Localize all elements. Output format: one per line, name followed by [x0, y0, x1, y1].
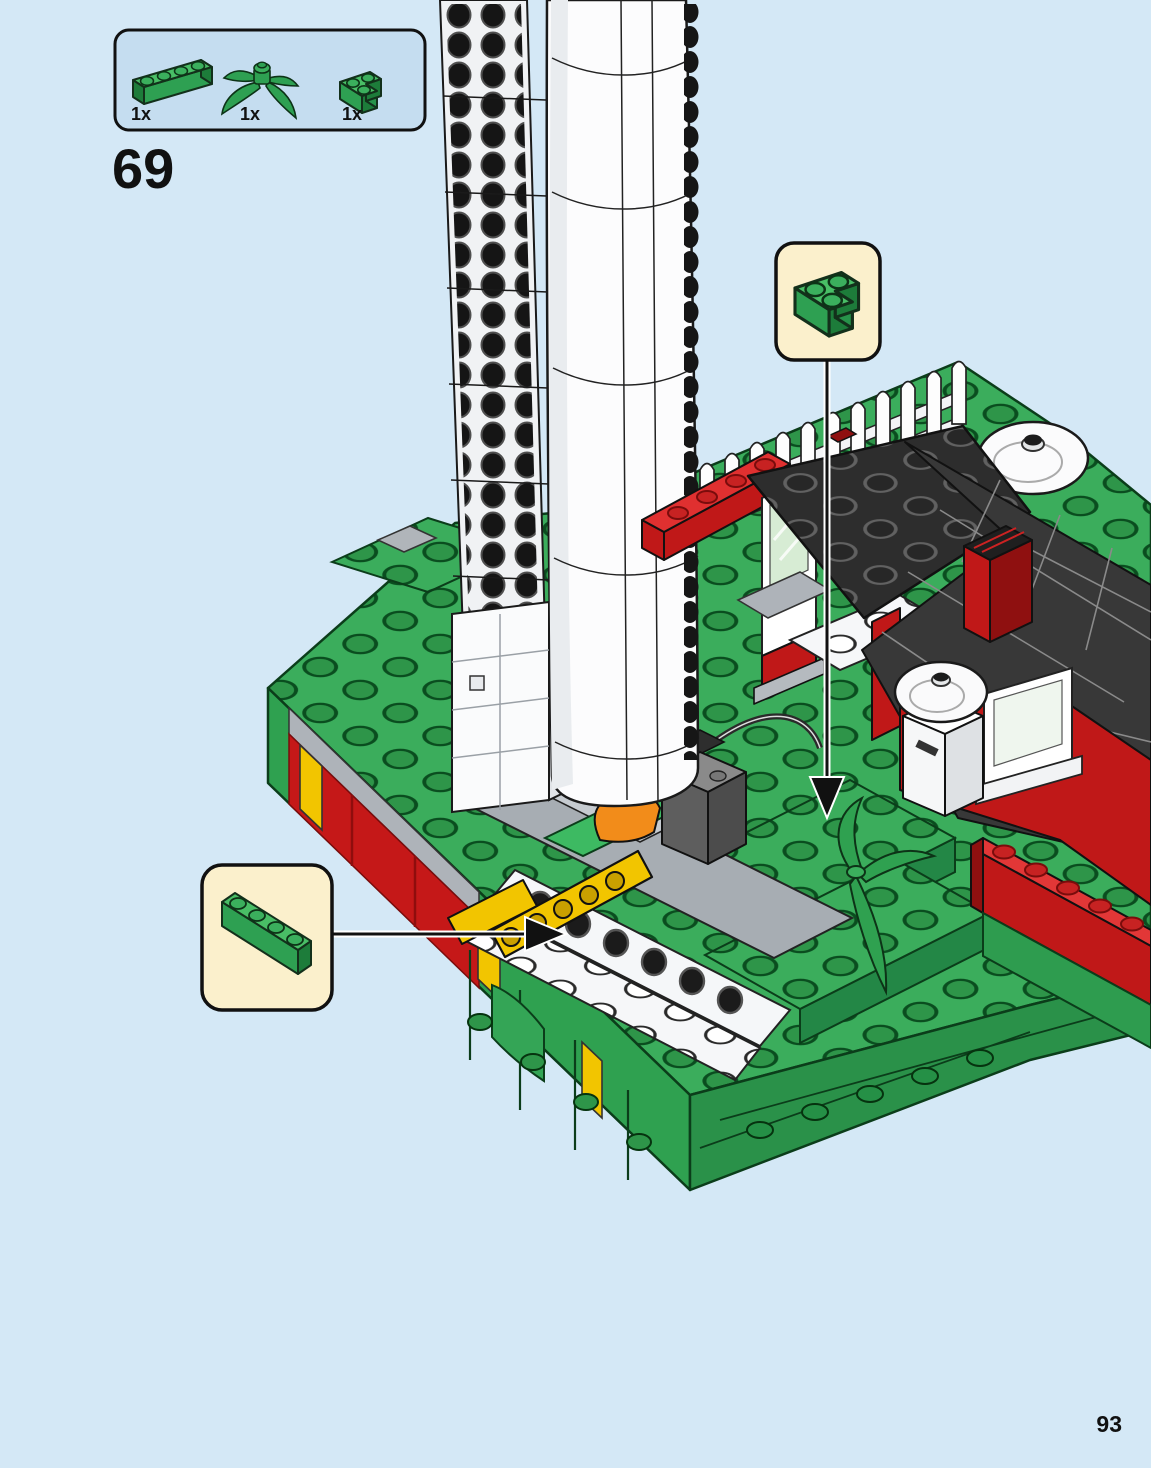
chimney: [964, 526, 1032, 642]
assembly-illustration: [268, 0, 1151, 1190]
page-canvas: 1x 1x 1x 69 93: [0, 0, 1151, 1468]
lighthouse-tower: [440, 0, 701, 812]
page-number: 93: [1096, 1411, 1122, 1437]
instruction-page: 1x 1x 1x 69 93: [0, 0, 1151, 1468]
step-number: 69: [112, 137, 174, 200]
parts-callout-panel: 1x 1x 1x: [115, 30, 425, 130]
part-count-label: 1x: [131, 104, 151, 124]
tower-side-studs: [684, 4, 701, 760]
part-count-label: 1x: [342, 104, 362, 124]
part-count-label: 1x: [240, 104, 260, 124]
satellite-dish-small: [895, 662, 987, 722]
